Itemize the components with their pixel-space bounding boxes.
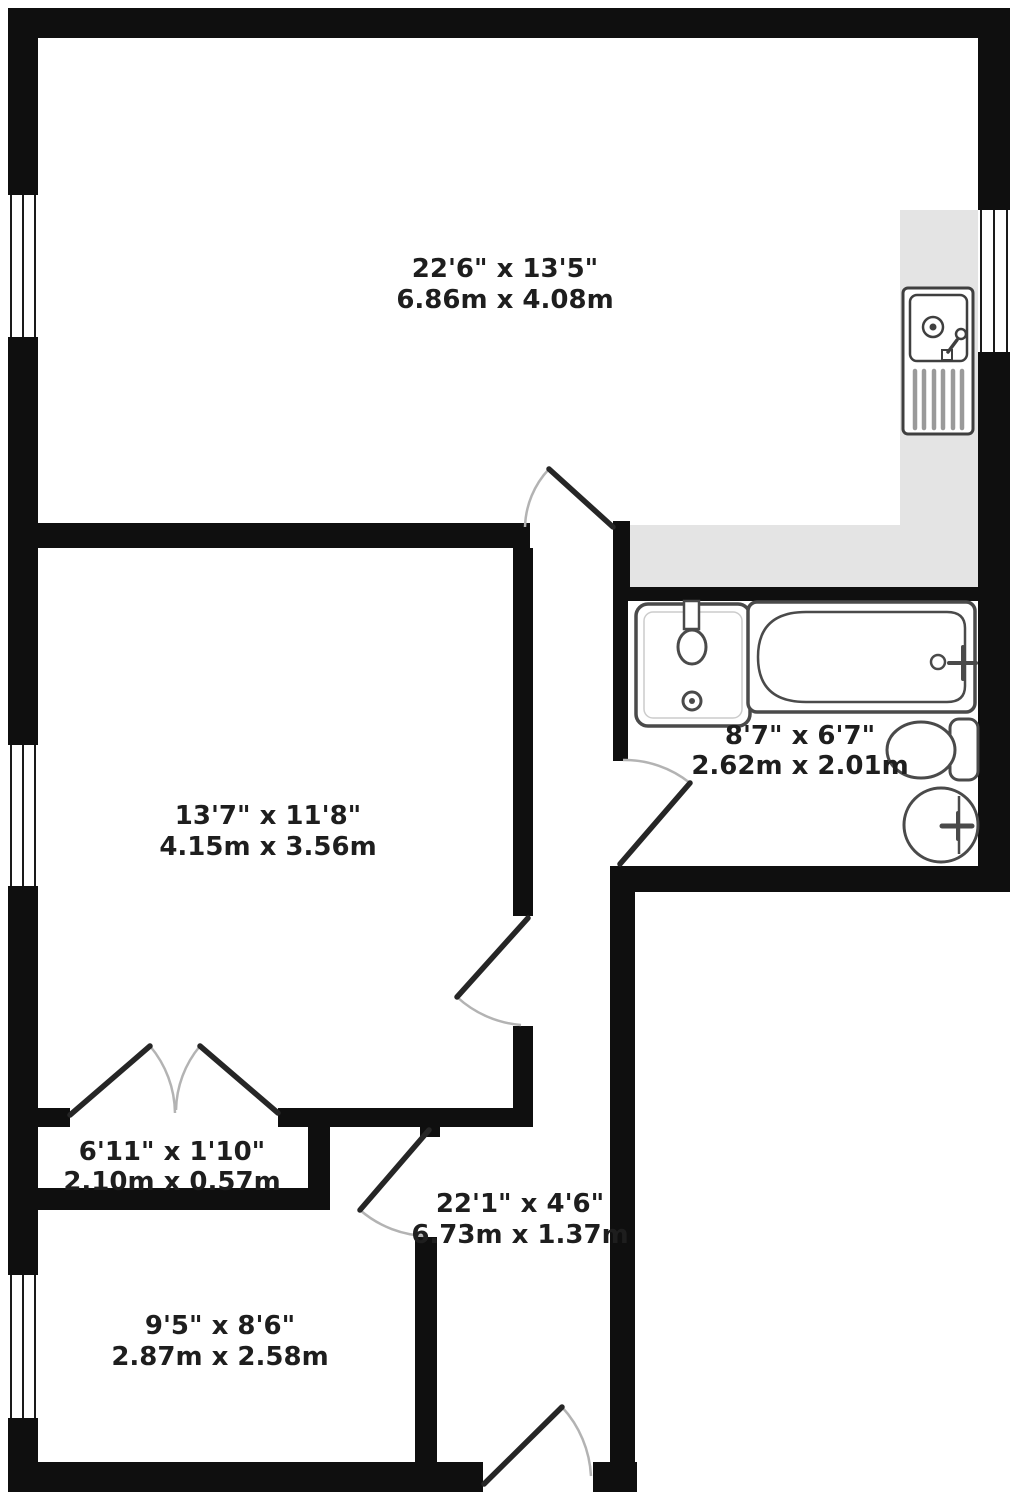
- floorplan-svg: 22'6" x 13'5" 6.86m x 4.08m 8'7" x 6'7" …: [0, 0, 1020, 1511]
- door-reception: [525, 469, 613, 527]
- bathroom-sink-icon: [636, 601, 750, 726]
- label-hallway-metric: 6.73m x 1.37m: [411, 1220, 628, 1250]
- label-reception-imperial: 22'6" x 13'5": [412, 254, 598, 284]
- wall-corridor-top-jamb: [613, 521, 630, 587]
- label-bathroom-imperial: 8'7" x 6'7": [725, 721, 875, 751]
- wall-bedroom1-right-lower: [513, 1026, 533, 1112]
- label-bedroom1-metric: 4.15m x 3.56m: [159, 832, 376, 862]
- label-bathroom-metric: 2.62m x 2.01m: [691, 751, 908, 781]
- kitchen-sink-icon: [903, 288, 973, 434]
- wall-bathroom-top: [613, 587, 978, 601]
- wall-hallway-right: [610, 892, 635, 1470]
- wall-outer-top: [8, 8, 1010, 38]
- window-right-top: [978, 210, 1010, 352]
- counter-bottom-run: [630, 525, 978, 587]
- window-left-bottom: [8, 1275, 38, 1418]
- wall-outer-bottom: [8, 1462, 483, 1492]
- window-left-middle: [8, 745, 38, 886]
- label-bedroom2-metric: 2.87m x 2.58m: [111, 1342, 328, 1372]
- bathtub-icon: [748, 602, 976, 712]
- wall-bathroom-left: [613, 601, 628, 761]
- label-bedroom1-imperial: 13'7" x 11'8": [175, 801, 361, 831]
- window-left-top: [8, 195, 38, 337]
- closet-double-doors: [70, 1046, 278, 1115]
- door-bathroom: [620, 760, 690, 864]
- wall-bathroom-bottom: [610, 866, 1010, 892]
- wall-outer-right: [978, 8, 1010, 892]
- label-reception-metric: 6.86m x 4.08m: [396, 285, 613, 315]
- floorplan-canvas: 22'6" x 13'5" 6.86m x 4.08m 8'7" x 6'7" …: [0, 0, 1020, 1511]
- wall-bedroom1-right-upper: [513, 548, 533, 916]
- label-closet-metric: 2.10m x 0.57m: [63, 1167, 280, 1197]
- label-closet-imperial: 6'11" x 1'10": [79, 1137, 265, 1167]
- wall-bedroom1-top: [8, 523, 530, 548]
- door-bedroom1: [457, 918, 528, 1025]
- label-hallway-imperial: 22'1" x 4'6": [436, 1189, 604, 1219]
- door-entry: [484, 1407, 591, 1484]
- wall-bedroom2-right: [415, 1237, 437, 1470]
- label-bedroom2-imperial: 9'5" x 8'6": [145, 1311, 295, 1341]
- wall-bedroom1-bottom-left: [8, 1108, 70, 1127]
- wash-basin-icon: [904, 788, 978, 862]
